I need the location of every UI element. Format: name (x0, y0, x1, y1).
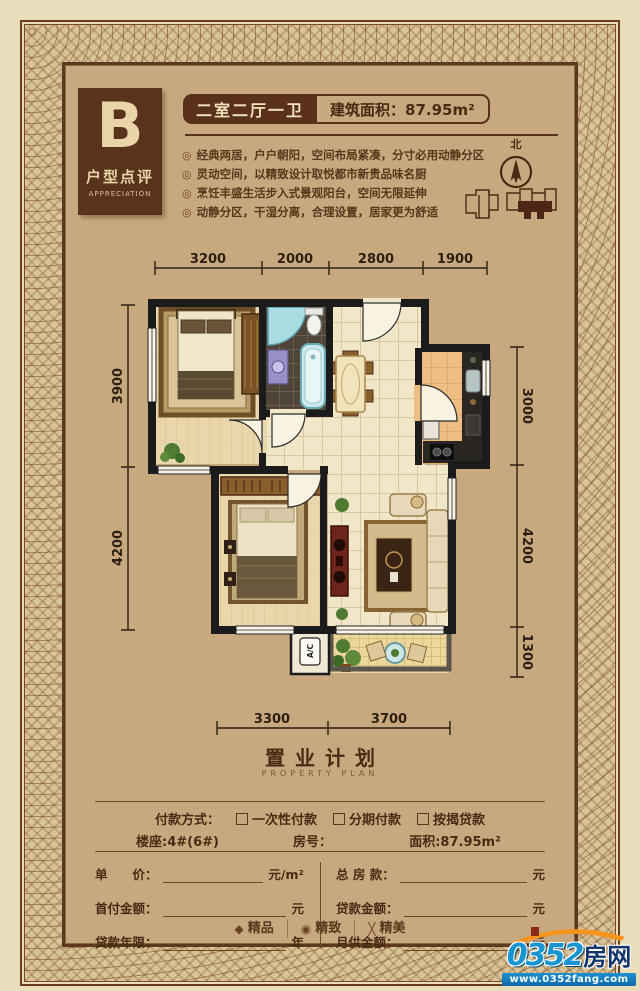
room-number-label: 房号： (260, 831, 365, 850)
ring-bullet-icon: ◎ (182, 146, 192, 165)
field-label: 贷款金额： (336, 898, 399, 917)
field-unit: 元 (532, 864, 545, 883)
payment-option: 一次性付款 (236, 809, 317, 828)
ring-bullet-icon: ◎ (182, 203, 192, 222)
badge-label: 精美 (379, 920, 405, 938)
blank-fill-line[interactable] (163, 868, 264, 883)
feature-bullets: ◎ 经典两居，户户朝阳，空间布局紧凑，分寸必用动静分区 ◎ 灵动空间，以精致设计… (182, 146, 504, 222)
feature-bullet: ◎ 烹饪丰盛生活步入式景观阳台，空间无限延伸 (182, 184, 504, 203)
dim-bottom-0: 3300 (254, 712, 290, 727)
form-cell: 首付金额： 元 (95, 898, 320, 917)
logo-name: 房网 (583, 937, 631, 972)
bullet-text: 烹饪丰盛生活步入式景观阳台，空间无限延伸 (197, 184, 427, 203)
ac-label: A/C (306, 643, 315, 658)
ring-bullet-icon: ◎ (182, 165, 192, 184)
logo-url[interactable]: www.0352fang.com (502, 973, 636, 986)
quality-badge: ╳ 精美 (354, 920, 418, 938)
dim-top-0: 3200 (190, 252, 226, 267)
unit-letter: B (78, 92, 162, 160)
unit-info-row: 楼座:4#(6#) 房号： 面积:87.95m² (95, 831, 545, 850)
form-cell: 总 房 款： 元 (320, 864, 545, 883)
checkbox-icon[interactable] (236, 813, 248, 825)
dim-top-1: 2000 (277, 252, 313, 267)
unit-title: 户型点评 (78, 166, 162, 187)
divider-line (95, 851, 545, 852)
field-unit: 元/m² (268, 864, 304, 883)
checkbox-icon[interactable] (333, 813, 345, 825)
site-logo[interactable]: 0352 房网 www.0352fang.com (502, 924, 636, 986)
dim-top-3: 1900 (437, 252, 473, 267)
field-unit: 元 (532, 898, 545, 917)
unit-area: 面积:87.95m² (365, 831, 545, 850)
medal-icon: ◉ (301, 920, 311, 938)
dim-bottom-1: 3700 (371, 712, 407, 727)
field-unit: 元 (291, 898, 304, 917)
form-cell: 贷款金额： 元 (320, 898, 545, 917)
building-number: 楼座:4#(6#) (95, 831, 260, 850)
feature-bullet: ◎ 经典两居，户户朝阳，空间布局紧凑，分寸必用动静分区 (182, 146, 504, 165)
unit-subtitle: APPRECIATION (78, 190, 162, 198)
dim-left-0: 3900 (111, 368, 126, 404)
badge-label: 精致 (315, 920, 341, 938)
form-cell: 单 价： 元/m² (95, 864, 320, 883)
compass-north-label: 北 (511, 137, 522, 151)
flyer-page: B 户型点评 APPRECIATION 二室二厅一卫 建筑面积：87.95m² … (0, 0, 640, 991)
ac-platform: A/C (291, 628, 329, 674)
blank-fill-line[interactable] (163, 936, 287, 951)
bullet-text: 灵动空间，以精致设计取悦都市新贵品味名厨 (197, 165, 427, 184)
dim-right-0: 3000 (519, 388, 534, 424)
building-footprint-map (463, 183, 567, 225)
dim-left-1: 4200 (111, 530, 126, 566)
layout-title: 二室二厅一卫 (183, 94, 317, 124)
payment-option: 按揭贷款 (417, 809, 485, 828)
dim-right-2: 1300 (519, 634, 534, 670)
bullet-text: 动静分区，干湿分离，合理设置，居家更为舒适 (197, 203, 439, 222)
payment-option-label: 一次性付款 (252, 809, 317, 828)
blank-fill-line[interactable] (400, 868, 528, 883)
quality-badge: ◉ 精致 (287, 920, 355, 938)
content: B 户型点评 APPRECIATION 二室二厅一卫 建筑面积：87.95m² … (0, 0, 640, 991)
highlighted-unit (518, 201, 552, 219)
field-label: 单 价： (95, 864, 158, 883)
payment-method-row: 付款方式： 一次性付款 分期付款 按揭贷款 (95, 809, 545, 828)
logo-number: 0352 (507, 938, 583, 973)
blank-fill-line[interactable] (163, 902, 287, 917)
ring-bullet-icon: ◎ (182, 184, 192, 203)
property-plan-subtitle: PROPERTY PLAN (0, 769, 640, 778)
unit-type-badge: B 户型点评 APPRECIATION (78, 88, 162, 215)
layout-title-badge: 二室二厅一卫 建筑面积：87.95m² (183, 94, 490, 124)
badge-label: 精品 (248, 920, 274, 938)
payment-option-label: 分期付款 (349, 809, 401, 828)
blank-fill-line[interactable] (404, 902, 528, 917)
checkbox-icon[interactable] (417, 813, 429, 825)
quality-badge: ◆ 精品 (222, 920, 287, 938)
payment-option: 分期付款 (333, 809, 401, 828)
dim-right-1: 4200 (519, 528, 534, 564)
property-plan-title: 置业计划 (0, 742, 640, 771)
feature-bullet: ◎ 动静分区，干湿分离，合理设置，居家更为舒适 (182, 203, 504, 222)
area-badge: 建筑面积：87.95m² (317, 94, 490, 124)
dim-top-2: 2800 (358, 252, 394, 267)
feature-bullet: ◎ 灵动空间，以精致设计取悦都市新贵品味名厨 (182, 165, 504, 184)
field-label: 总 房 款： (336, 864, 395, 883)
divider-line (95, 801, 545, 802)
scissors-icon: ╳ (368, 920, 375, 938)
price-form: 单 价： 元/m² 总 房 款： 元 首付金额： 元 贷款金额： (95, 856, 545, 958)
payment-label: 付款方式： (155, 809, 220, 828)
logo-wordmark: 0352 房网 (502, 937, 636, 973)
field-label: 首付金额： (95, 898, 158, 917)
bullet-text: 经典两居，户户朝阳，空间布局紧凑，分寸必用动静分区 (197, 146, 485, 165)
diamond-icon: ◆ (235, 920, 244, 938)
payment-option-label: 按揭贷款 (433, 809, 485, 828)
floor-plan: A/C (110, 240, 560, 740)
